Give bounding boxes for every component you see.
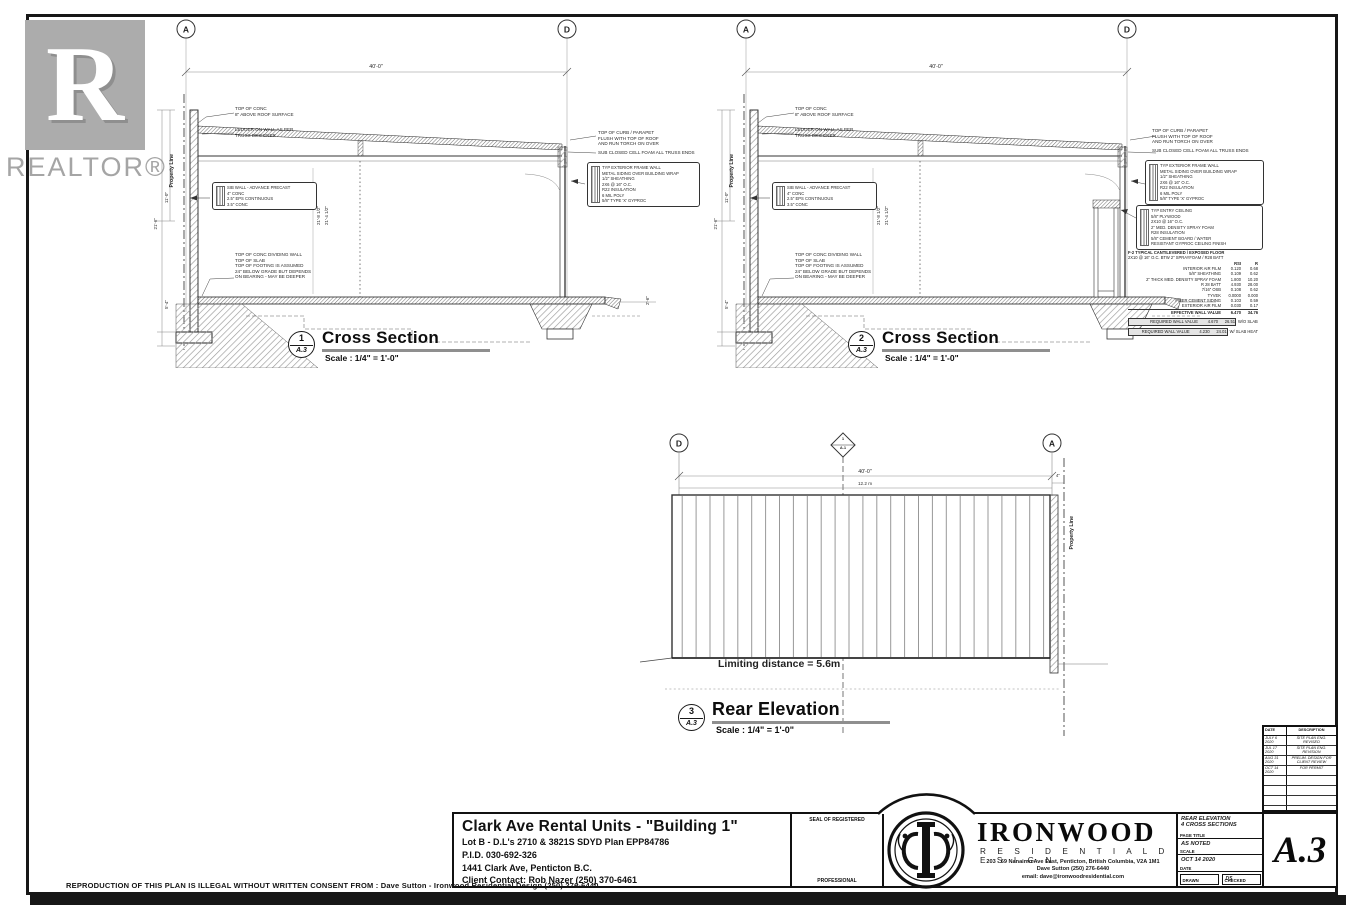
note-foam: SUB CLOSED CELL FOAM ALL TRUSS ENDS [1152, 148, 1249, 154]
note-line: TOP OF CURB / PARAPET [598, 130, 659, 136]
dim-left-3: 5'-4" [724, 300, 729, 309]
date-row: OCT 14 2020 DATE [1178, 855, 1262, 872]
checked-label: CHECKED [1225, 878, 1246, 883]
section-number: 2 [849, 332, 874, 344]
note-line: TOP OF CURB / PARAPET [1152, 128, 1213, 134]
dim-mid-1: 21'-8 1/2" [876, 206, 881, 225]
grid-bubble-a: A [737, 20, 756, 39]
revision-desc [1287, 806, 1336, 812]
firm-address: 203 - 69 Nanaimo Ave East, Penticton, Br… [972, 859, 1174, 866]
revision-row [1264, 806, 1336, 812]
revision-row: AUG 31 2020 PRELIM. DESIGN FOR CLIENT RE… [1264, 756, 1336, 766]
revision-row [1264, 796, 1336, 806]
section-number: 3 [679, 705, 704, 717]
note-foam: SUB CLOSED CELL FOAM ALL TRUSS ENDS [598, 150, 695, 156]
section-tag-3: 3 A.3 [678, 704, 705, 731]
entry-ceiling-box: TYP ENTRY CEILING5/8" PLYWOOD2X10 @ 16" … [1136, 205, 1263, 250]
section-marker-number: 1 [842, 437, 844, 442]
dim-left-3: 5'-4" [164, 300, 169, 309]
dim-left-1: 11'-0" [164, 192, 169, 203]
section-scale: Scale : 1/4" = 1'-0" [716, 725, 794, 735]
note-line: 8" ABOVE ROOF SURFACE [235, 112, 294, 118]
seal-cell: SEAL OF REGISTERED PROFESSIONAL [790, 814, 882, 886]
project-info-cell: Clark Ave Rental Units - "Building 1" Lo… [454, 814, 790, 886]
revision-date: JULY 6 2020 [1264, 736, 1287, 745]
revision-date: JUL 17 2020 [1264, 746, 1287, 755]
drawn-cell: DRAWN [1180, 874, 1219, 885]
revision-desc: SITE PLAN ENG. REVISION [1287, 746, 1336, 755]
project-lines: Lot B - D.L's 2710 & 3821S SDYD Plan EPP… [462, 836, 782, 887]
project-line: 1441 Clark Ave, Penticton B.C. [462, 862, 782, 875]
drawn-value [1181, 875, 1218, 877]
note-parapet: TOP OF CURB / PARAPETFLUSH WITH TOP OF R… [1152, 128, 1213, 145]
revision-row: JULY 6 2020 SITE PLAN ENG. REVISED [1264, 736, 1336, 746]
dim-left-2: 21'-6" [153, 218, 158, 229]
note-top-of-conc: TOP OF CONC8" ABOVE ROOF SURFACE [235, 106, 294, 117]
note-line: AND RUN TORCH ON OVER [598, 141, 659, 147]
wall-detail-box: SIB WALL - ADVANCE PRECAST4" CONC2.5" EP… [212, 182, 317, 210]
section-scale: Scale : 1/4" = 1'-0" [325, 353, 399, 363]
section-tag-2: 2 A.3 [848, 331, 875, 358]
revision-desc [1287, 786, 1336, 795]
dim-4in: 4" [1056, 473, 1060, 478]
required-name: REQUIRED WALL VALUE [1129, 319, 1201, 325]
note-line: TOP OF CONC DIVIDING WALL [795, 252, 871, 258]
property-line-label: Property Line [169, 154, 175, 187]
grid-bubble-d: D [1118, 20, 1137, 39]
note-line: 3.5" CONC [227, 202, 313, 208]
wall-detail-box: SIB WALL - ADVANCE PRECAST4" CONC2.5" EP… [772, 182, 877, 210]
dim-metric: 12.2 m [858, 481, 872, 487]
revision-date-header: DATE [1264, 727, 1287, 735]
note-line: LEDGER ON WALL AS PER [235, 127, 293, 133]
row-rsi: 0.030 [1224, 303, 1241, 308]
note-line: TRUSS DESIGNER [235, 133, 293, 139]
required-row-1: REQUIRED WALL VALUE 4.670 26.51 W/O SLAB [1128, 318, 1258, 326]
section-sheet: A.3 [289, 344, 314, 357]
firm-phone: Dave Sutton (250) 276-6440 [972, 866, 1174, 873]
revision-desc: PRELIM. DESIGN FOR CLIENT REVIEW [1287, 756, 1336, 765]
revision-header: DATE DESCRIPTION [1264, 727, 1336, 736]
sheet-info-cell: REAR ELEVATION 4 CROSS SECTIONS PAGE TIT… [1176, 814, 1262, 886]
realtor-logo-square: R [25, 20, 145, 150]
revision-table: DATE DESCRIPTION JULY 6 2020 SITE PLAN E… [1262, 725, 1338, 812]
required-r: 26.51 [1218, 319, 1235, 325]
project-line: P.I.D. 030-692-326 [462, 849, 782, 862]
dim-mid-1: 21'-8 1/2" [316, 206, 321, 225]
note-line: AND RUN TORCH ON OVER [1152, 139, 1213, 145]
bottom-border-bar [30, 895, 1346, 905]
section-scale: Scale : 1/4" = 1'-0" [885, 353, 959, 363]
seal-bottom-label: PROFESSIONAL [792, 878, 882, 884]
note-dividing-wall: TOP OF CONC DIVIDING WALLTOP OF SLABTOP … [235, 252, 311, 280]
note-line: TOP OF FOOTING IS ASSUMED [795, 263, 871, 269]
row-name: EXTERIOR AIR FILM [1128, 303, 1224, 308]
scale-label: SCALE [1180, 849, 1195, 854]
effective-rsi: 6.470 [1224, 310, 1241, 316]
title-block: Clark Ave Rental Units - "Building 1" Lo… [452, 812, 1338, 888]
revision-date [1264, 776, 1287, 785]
required-note: W/O SLAB [1238, 319, 1258, 324]
note-line: 8" ABOVE ROOF SURFACE [795, 112, 854, 118]
revision-date: AUG 31 2020 [1264, 756, 1287, 765]
revision-row: OCT 14 2020 FOR PERMIT [1264, 766, 1336, 776]
section-number: 1 [289, 332, 314, 344]
revision-date [1264, 786, 1287, 795]
property-line-label: Property Line [1069, 516, 1075, 549]
note-dividing-wall: TOP OF CONC DIVIDING WALLTOP OF SLABTOP … [795, 252, 871, 280]
sheet-number-cell: A.3 [1262, 814, 1336, 886]
drawn-checked-row: DRAWN DS CHECKED [1178, 872, 1262, 886]
dim-mid-2: 21'-4 1/2" [324, 206, 329, 225]
firm-email: email: dave@ironwoodresidential.com [972, 874, 1174, 881]
limiting-distance-note: Limiting distance = 5.6m [718, 658, 840, 670]
revision-rows: JULY 6 2020 SITE PLAN ENG. REVISED JUL 1… [1264, 736, 1336, 813]
note-line: 5/8" TYPE 'X' GYPROC [602, 198, 696, 204]
title-underline [322, 349, 490, 352]
required-rsi: 4.670 [1201, 319, 1218, 325]
realtor-r-glyph: R [46, 31, 124, 139]
section-marker-sheet: A.1 [840, 446, 846, 451]
dim-40ft: 40'-0" [929, 64, 943, 70]
dim-40ft: 40'-0" [369, 64, 383, 70]
section-tag-1: 1 A.3 [288, 331, 315, 358]
revision-date [1264, 806, 1287, 812]
required-note: W/ SLAB HEAT [1230, 329, 1258, 334]
note-line: 5/8" TYPE 'X' GYPROC [1160, 196, 1260, 202]
dim-40ft: 40'-0" [858, 469, 872, 475]
table-row: EXTERIOR AIR FILM 0.030 0.17 [1128, 303, 1258, 308]
date-label: DATE [1180, 866, 1191, 871]
note-line: ON BEARING - MAY BE DEEPER [795, 274, 871, 280]
title-underline [882, 349, 1050, 352]
effective-r: 34.76 [1241, 310, 1258, 316]
page-title-label: PAGE TITLE [1180, 833, 1205, 838]
note-top-of-conc: TOP OF CONC8" ABOVE ROOF SURFACE [795, 106, 854, 117]
note-line: RESISTANT GYPROC CEILING FINISH [1151, 241, 1259, 247]
required-r: 24.01 [1210, 329, 1227, 335]
cross-section-2: A D 40'-0" Property Line TOP OF CONC8" A… [700, 16, 1368, 368]
dim-mid-2: 21'-4 1/2" [884, 206, 889, 225]
note-line: 3.5" CONC [787, 202, 873, 208]
frame-wall-box: TYP EXTERIOR FRAME WALLMETAL SIDING OVER… [1145, 160, 1264, 205]
section-sheet: A.3 [679, 717, 704, 730]
sheet-number: A.3 [1274, 829, 1326, 872]
revision-desc [1287, 796, 1336, 805]
section-title: Rear Elevation [712, 699, 840, 720]
note-line: LEDGER ON WALL AS PER [795, 127, 853, 133]
section-title: Cross Section [882, 328, 999, 348]
section-title: Cross Section [322, 328, 439, 348]
revision-desc: FOR PERMIT [1287, 766, 1336, 775]
required-rsi: 4.230 [1193, 329, 1210, 335]
required-row-2: REQUIRED WALL VALUE 4.230 24.01 W/ SLAB … [1128, 328, 1258, 336]
firm-name: IRONWOOD [977, 818, 1156, 846]
dim-right: 2'-6" [645, 296, 650, 305]
grid-bubble-d: D [558, 20, 577, 39]
effective-name: EFFECTIVE WALL VALUE [1128, 310, 1224, 316]
grid-bubble-d: D [670, 434, 689, 453]
table-rows: INTERIOR AIR FILM 0.120 0.68 5/8" SHEATH… [1128, 266, 1258, 309]
revision-desc: SITE PLAN ENG. REVISED [1287, 736, 1336, 745]
effective-row: EFFECTIVE WALL VALUE 6.470 34.76 [1128, 309, 1258, 316]
firm-logo-cell: IRONWOOD R E S I D E N T I A L D E S I G… [882, 814, 1176, 886]
scale-value: AS NOTED [1178, 839, 1262, 847]
date-value: OCT 14 2020 [1178, 855, 1262, 863]
note-line: TOP OF FOOTING IS ASSUMED [235, 263, 311, 269]
required-name: REQUIRED WALL VALUE [1129, 329, 1193, 335]
project-line: Lot B - D.L's 2710 & 3821S SDYD Plan EPP… [462, 836, 782, 849]
firm-contact: 203 - 69 Nanaimo Ave East, Penticton, Br… [972, 859, 1174, 881]
note-line: TRUSS DESIGNER [795, 133, 853, 139]
page-title-row: REAR ELEVATION 4 CROSS SECTIONS PAGE TIT… [1178, 814, 1262, 839]
drawn-label: DRAWN [1183, 878, 1199, 883]
dim-left-1: 11'-0" [724, 192, 729, 203]
section-sheet: A.3 [849, 344, 874, 357]
scale-row: AS NOTED SCALE [1178, 839, 1262, 855]
page-title-value-2: 4 CROSS SECTIONS [1178, 822, 1262, 829]
revision-row [1264, 786, 1336, 796]
property-line-label: Property Line [729, 154, 735, 187]
revision-desc-header: DESCRIPTION [1287, 727, 1336, 735]
grid-bubble-a: A [1043, 434, 1062, 453]
seal-top-label: SEAL OF REGISTERED [792, 817, 882, 823]
dim-left-2: 21'-6" [713, 218, 718, 229]
note-line: TOP OF CONC DIVIDING WALL [235, 252, 311, 258]
page-title-value-1: REAR ELEVATION [1178, 814, 1262, 822]
checked-cell: DS CHECKED [1222, 874, 1261, 885]
note-line: ON BEARING - MAY BE DEEPER [235, 274, 311, 280]
note-parapet: TOP OF CURB / PARAPETFLUSH WITH TOP OF R… [598, 130, 659, 147]
frame-wall-box: TYP EXTERIOR FRAME WALLMETAL SIDING OVER… [587, 162, 700, 207]
note-ledger: LEDGER ON WALL AS PERTRUSS DESIGNER [795, 127, 853, 138]
revision-date: OCT 14 2020 [1264, 766, 1287, 775]
grid-bubble-a: A [177, 20, 196, 39]
title-underline [712, 721, 890, 724]
project-title: Clark Ave Rental Units - "Building 1" [462, 817, 782, 836]
note-ledger: LEDGER ON WALL AS PERTRUSS DESIGNER [235, 127, 293, 138]
revision-row: JUL 17 2020 SITE PLAN ENG. REVISION [1264, 746, 1336, 756]
revision-date [1264, 796, 1287, 805]
revision-desc [1287, 776, 1336, 785]
rear-elevation: D A 1 A.1 40'-0" 12.2 m 4" Property Line… [640, 428, 1130, 740]
revision-row [1264, 776, 1336, 786]
floor-rvalue-table: F-2 TYPICAL CANTILEVERED / EXPOSED FLOOR… [1128, 250, 1258, 336]
row-r: 0.17 [1241, 303, 1258, 308]
copyright-disclaimer: REPRODUCTION OF THIS PLAN IS ILLEGAL WIT… [66, 881, 599, 890]
